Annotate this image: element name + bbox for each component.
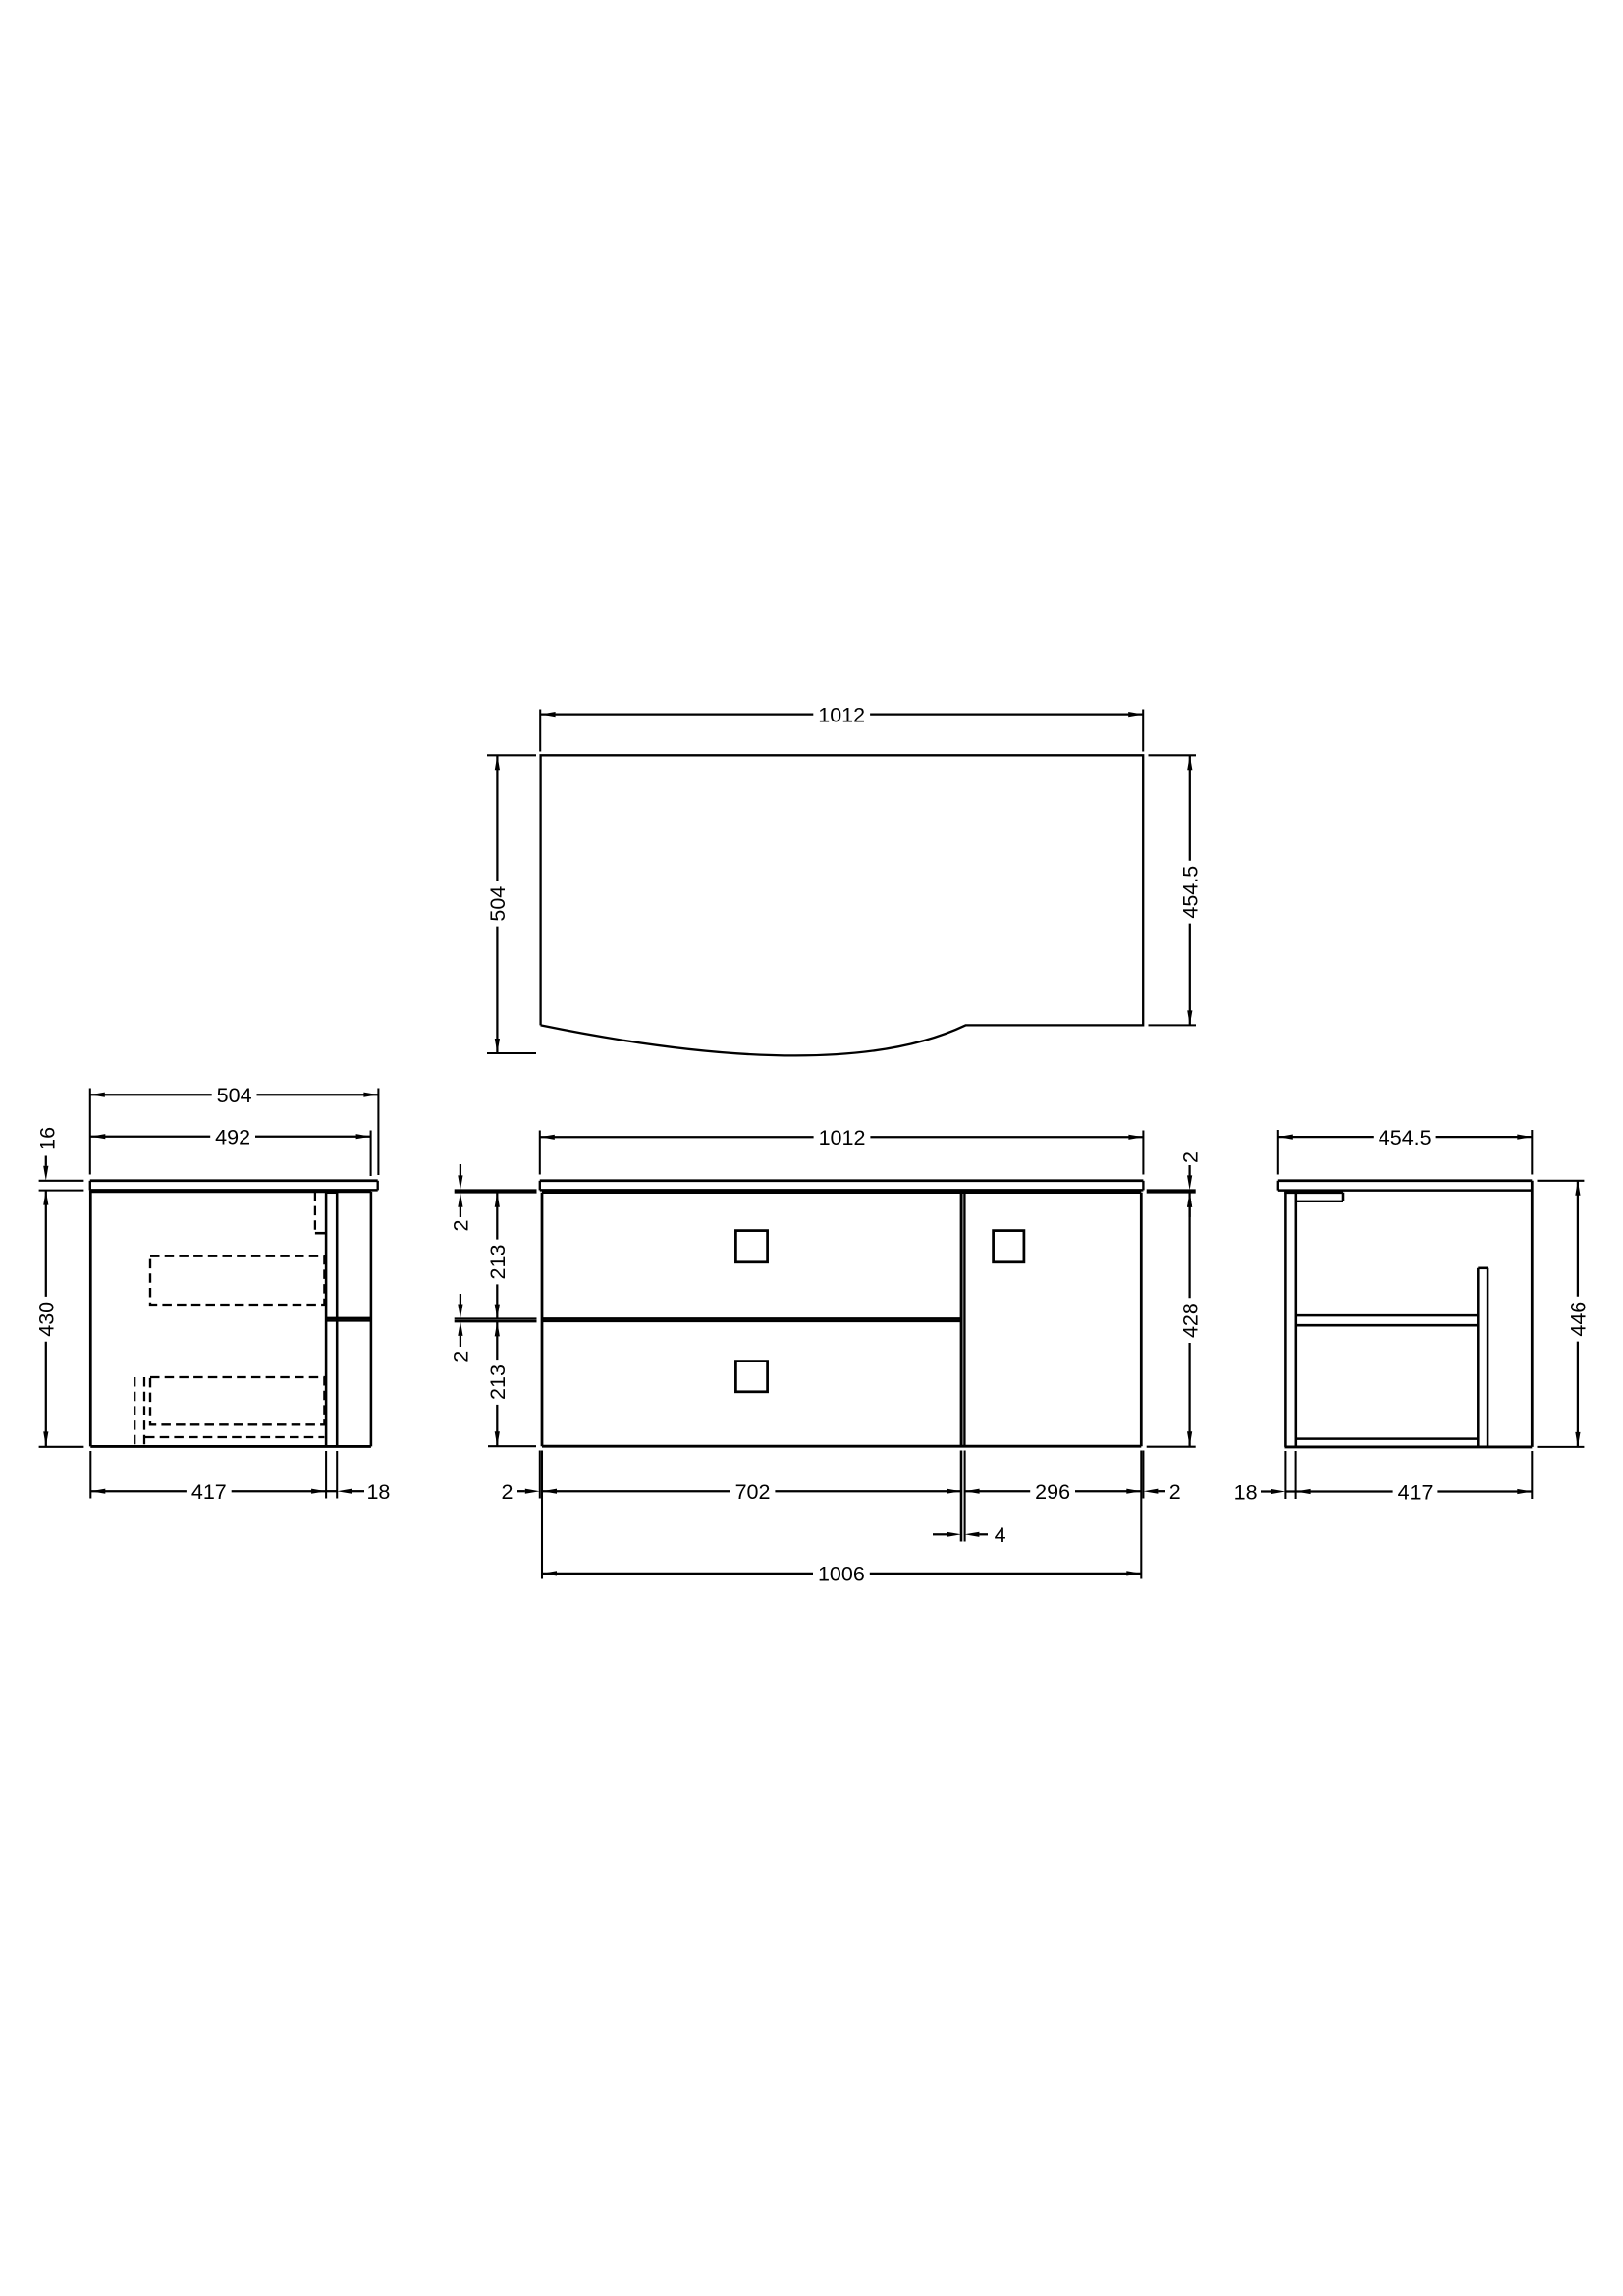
svg-text:1012: 1012 [818,703,865,726]
svg-text:16: 16 [36,1127,60,1150]
svg-text:1006: 1006 [818,1563,865,1586]
svg-text:2: 2 [450,1220,473,1232]
svg-text:18: 18 [366,1480,390,1504]
svg-text:702: 702 [735,1480,771,1504]
svg-text:504: 504 [217,1084,252,1107]
svg-text:213: 213 [486,1364,510,1400]
svg-text:4: 4 [995,1523,1006,1547]
svg-text:430: 430 [35,1302,59,1337]
svg-text:296: 296 [1035,1480,1070,1504]
svg-text:492: 492 [215,1126,250,1149]
svg-text:446: 446 [1567,1302,1591,1337]
svg-text:2: 2 [1169,1480,1181,1504]
svg-text:2: 2 [502,1480,514,1504]
svg-text:504: 504 [486,886,510,922]
svg-text:417: 417 [1398,1480,1434,1504]
svg-text:417: 417 [191,1480,227,1504]
svg-text:1012: 1012 [819,1126,866,1149]
svg-text:213: 213 [486,1245,510,1280]
svg-text:428: 428 [1178,1303,1202,1338]
svg-text:2: 2 [1178,1151,1202,1163]
svg-text:2: 2 [450,1351,473,1362]
svg-text:454.5: 454.5 [1379,1126,1432,1149]
svg-text:18: 18 [1234,1480,1258,1504]
svg-text:454.5: 454.5 [1179,866,1203,919]
